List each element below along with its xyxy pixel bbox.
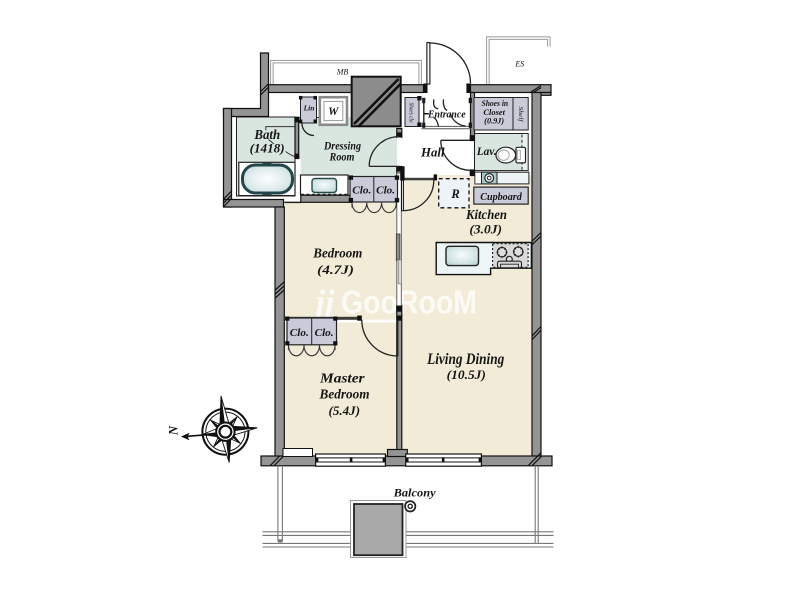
svg-text:(10.5J): (10.5J): [447, 367, 486, 382]
svg-text:Shelf: Shelf: [517, 107, 524, 123]
svg-text:(5.4J): (5.4J): [329, 403, 361, 418]
svg-text:MB: MB: [336, 68, 349, 77]
svg-text:Clo.: Clo.: [352, 185, 371, 197]
svg-text:Clo.: Clo.: [376, 185, 395, 197]
svg-text:Hall: Hall: [420, 145, 445, 160]
svg-text:Closet: Closet: [483, 108, 506, 117]
svg-text:R: R: [450, 187, 459, 201]
svg-text:Balcony: Balcony: [393, 485, 437, 499]
svg-text:Bath: Bath: [253, 127, 280, 142]
svg-text:N: N: [166, 425, 181, 436]
svg-text:(1418): (1418): [250, 142, 285, 156]
svg-text:Shoes in: Shoes in: [482, 99, 509, 108]
svg-text:Bedroom: Bedroom: [319, 388, 370, 403]
svg-text:Clo.: Clo.: [315, 327, 334, 339]
svg-text:Clo.: Clo.: [290, 327, 309, 339]
svg-text:Cupboard: Cupboard: [480, 192, 522, 203]
svg-text:Entrance: Entrance: [427, 109, 466, 121]
svg-text:(0.9J): (0.9J): [484, 117, 504, 126]
svg-text:Kitchen: Kitchen: [465, 207, 507, 222]
svg-text:Lav.: Lav.: [476, 144, 497, 158]
svg-text:Shoes clo: Shoes clo: [408, 103, 415, 124]
svg-text:GooRooM: GooRooM: [341, 284, 477, 321]
svg-text:Room: Room: [329, 152, 355, 164]
svg-text:Lin: Lin: [303, 104, 315, 113]
svg-text:W: W: [328, 106, 339, 118]
svg-text:Master: Master: [319, 372, 365, 387]
svg-text:Bedroom: Bedroom: [312, 246, 362, 261]
svg-text:Living Dining: Living Dining: [426, 351, 504, 368]
svg-text:(4.7J): (4.7J): [317, 262, 354, 277]
svg-text:ES: ES: [514, 60, 524, 69]
svg-text:Dressing: Dressing: [323, 140, 361, 152]
svg-text:(3.0J): (3.0J): [469, 223, 502, 237]
